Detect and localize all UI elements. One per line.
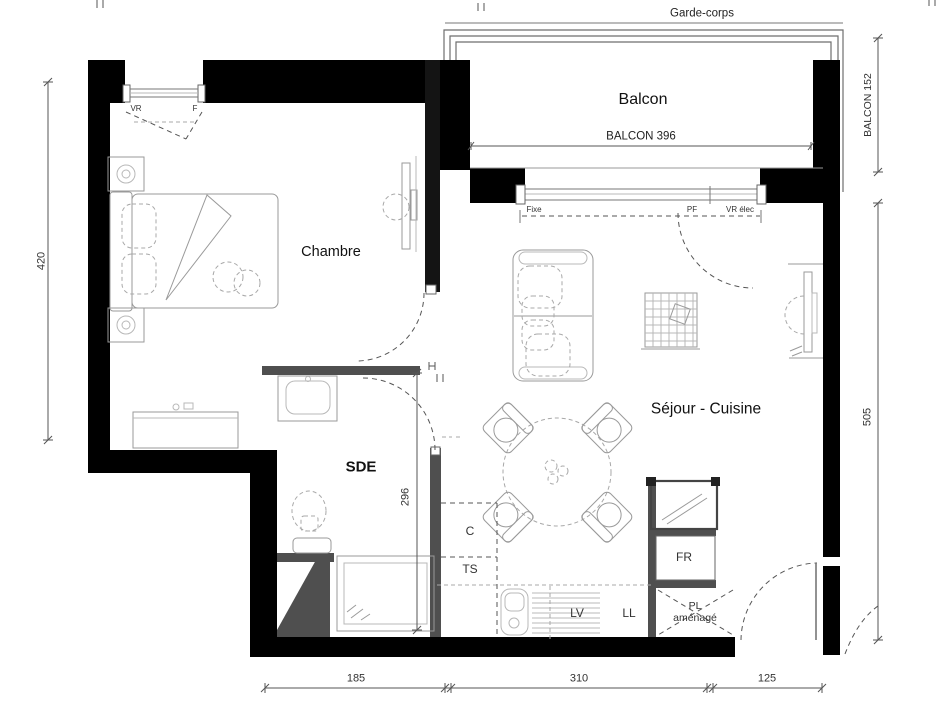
dim-505: 505 [863,408,874,426]
shelf [293,538,331,553]
label-window-fixe: Fixe [526,206,541,214]
bedroom-door-swing [357,293,424,361]
washbasin [278,376,337,421]
blanket [166,195,231,300]
living-tv-unit [785,264,823,358]
label-window-pf: PF [687,206,697,214]
dim-296: 296 [401,488,412,506]
landing-door-swing [845,606,878,654]
label-pl-line2: aménagé [673,612,717,624]
dining-table [481,401,634,544]
bathroom-door-swing [363,378,435,450]
label-lv: LV [570,607,584,619]
balcony-door-swing [678,213,753,288]
rug-grid [641,293,700,349]
label-closet-c: C [466,525,475,537]
technical-shaft [277,560,330,637]
label-window-f: F [193,105,198,113]
entrance-door-swing [741,563,817,640]
chair [481,401,535,455]
room-label-balcon: Balcon [619,92,668,108]
bedroom-tv-unit [383,156,417,252]
dim-310: 310 [570,674,588,685]
room-label-sejour-cuisine: Séjour - Cuisine [651,401,761,417]
dim-420: 420 [37,252,48,270]
dim-balcon-152: BALCON 152 [863,73,874,137]
label-ll: LL [622,607,635,619]
dim-185: 185 [347,674,365,685]
label-pl-line1: PL [673,600,717,612]
label-pl-amenage: PL aménagé [673,600,717,624]
label-garde-corps: Garde-corps [670,8,734,20]
label-fr: FR [676,551,692,563]
dishwasher-hob [532,586,600,640]
kitchen-sink [501,589,528,635]
floorplan: Garde-corps Balcon BALCON 396 Fixe PF VR… [0,0,940,705]
desk [133,403,238,448]
dim-125: 125 [758,674,776,685]
upper-cabinet [646,477,720,529]
bed [110,192,278,311]
nightstand [108,308,144,342]
sofa [513,250,593,381]
room-label-chambre: Chambre [301,245,361,260]
label-window-vr: VR [130,105,141,113]
survey-ticks [97,0,935,11]
toilet [292,491,326,531]
shower-drain [347,605,370,620]
label-window-vr-elec: VR élec [726,206,754,214]
shower [337,556,434,631]
bedroom-furniture [108,156,417,448]
label-closet-ts: TS [462,563,477,575]
dim-balcon-396: BALCON 396 [606,131,676,143]
room-label-sde: SDE [346,460,377,475]
chair [481,490,535,544]
chair [580,490,634,544]
nightstand [108,157,144,191]
